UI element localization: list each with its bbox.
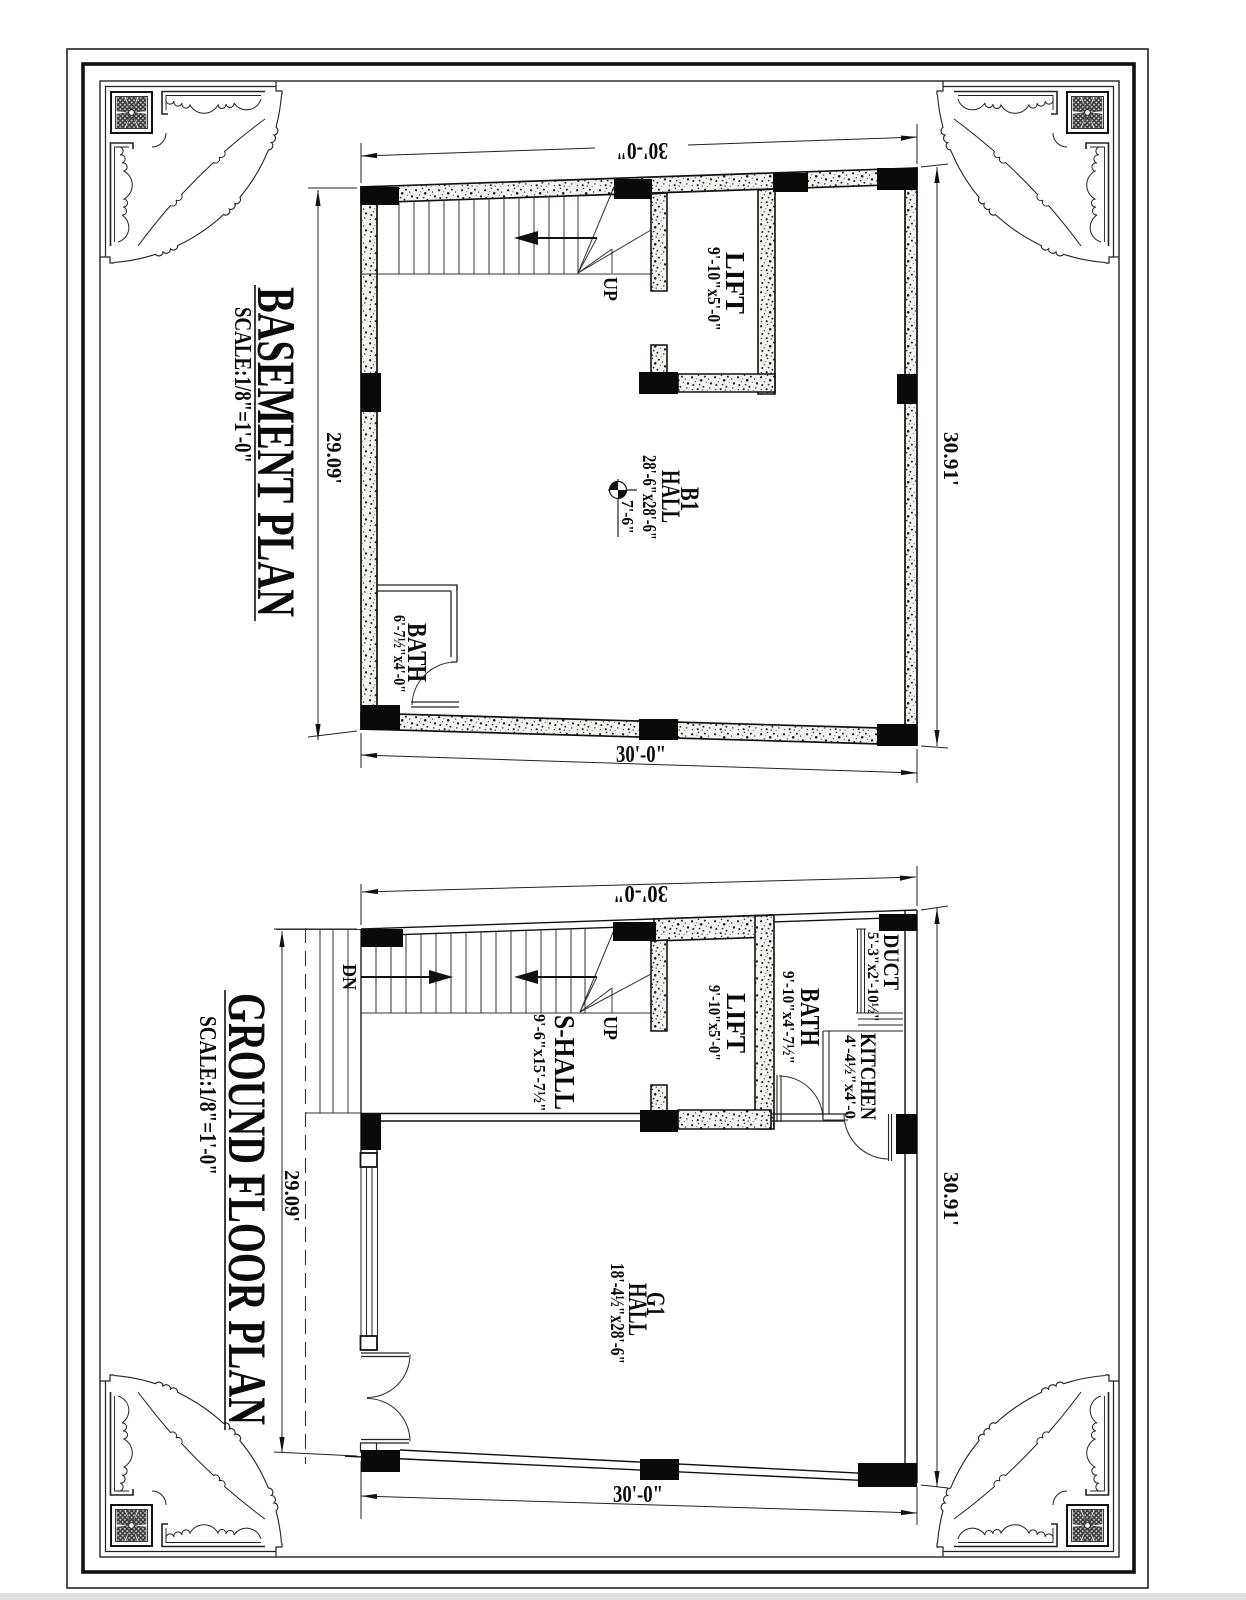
- svg-text:GROUND FLOOR PLAN: GROUND FLOOR PLAN: [217, 993, 277, 1425]
- svg-text:6'-7½"x4'-0": 6'-7½"x4'-0": [390, 615, 409, 693]
- svg-text:DUCT: DUCT: [879, 934, 904, 990]
- svg-text:LIFT: LIFT: [721, 993, 751, 1053]
- svg-text:BATH: BATH: [795, 988, 825, 1046]
- svg-text:UP: UP: [599, 1016, 621, 1040]
- svg-text:S-HALL: S-HALL: [548, 1015, 579, 1110]
- svg-text:5'-3"x2'-10½": 5'-3"x2'-10½": [864, 932, 881, 1022]
- svg-text:9'-10"x5'-0": 9'-10"x5'-0": [705, 985, 724, 1061]
- svg-text:7'-6": 7'-6": [618, 500, 637, 534]
- svg-text:9'-6"x15'-7½": 9'-6"x15'-7½": [530, 1014, 549, 1112]
- svg-text:DN: DN: [338, 964, 360, 990]
- svg-text:9'-10"x5'-0": 9'-10"x5'-0": [704, 247, 724, 331]
- svg-text:18'-4½"x28'-6": 18'-4½"x28'-6": [606, 1263, 628, 1364]
- svg-text:29.09': 29.09': [322, 432, 346, 484]
- svg-text:30.91': 30.91': [939, 1172, 963, 1226]
- svg-text:9'-10"x4'-7½": 9'-10"x4'-7½": [779, 971, 798, 1064]
- svg-text:28'-6"x28'-6": 28'-6"x28'-6": [638, 455, 660, 540]
- svg-text:UP: UP: [599, 277, 621, 301]
- svg-text:4'-4½"x4'-0: 4'-4½"x4'-0: [841, 1035, 858, 1119]
- svg-text:SCALE:1/8"=1'-0": SCALE:1/8"=1'-0": [229, 307, 255, 463]
- svg-text:30'-0": 30'-0": [616, 137, 668, 163]
- svg-text:30'-0": 30'-0": [613, 1482, 663, 1508]
- svg-text:29.09': 29.09': [280, 1170, 304, 1222]
- svg-text:30'-0": 30'-0": [616, 742, 666, 768]
- svg-text:30.91': 30.91': [939, 432, 963, 486]
- svg-text:KITCHEN: KITCHEN: [856, 1033, 881, 1120]
- svg-text:SCALE:1/8"=1'-0": SCALE:1/8"=1'-0": [194, 1016, 220, 1175]
- svg-text:30'-0": 30'-0": [613, 880, 668, 906]
